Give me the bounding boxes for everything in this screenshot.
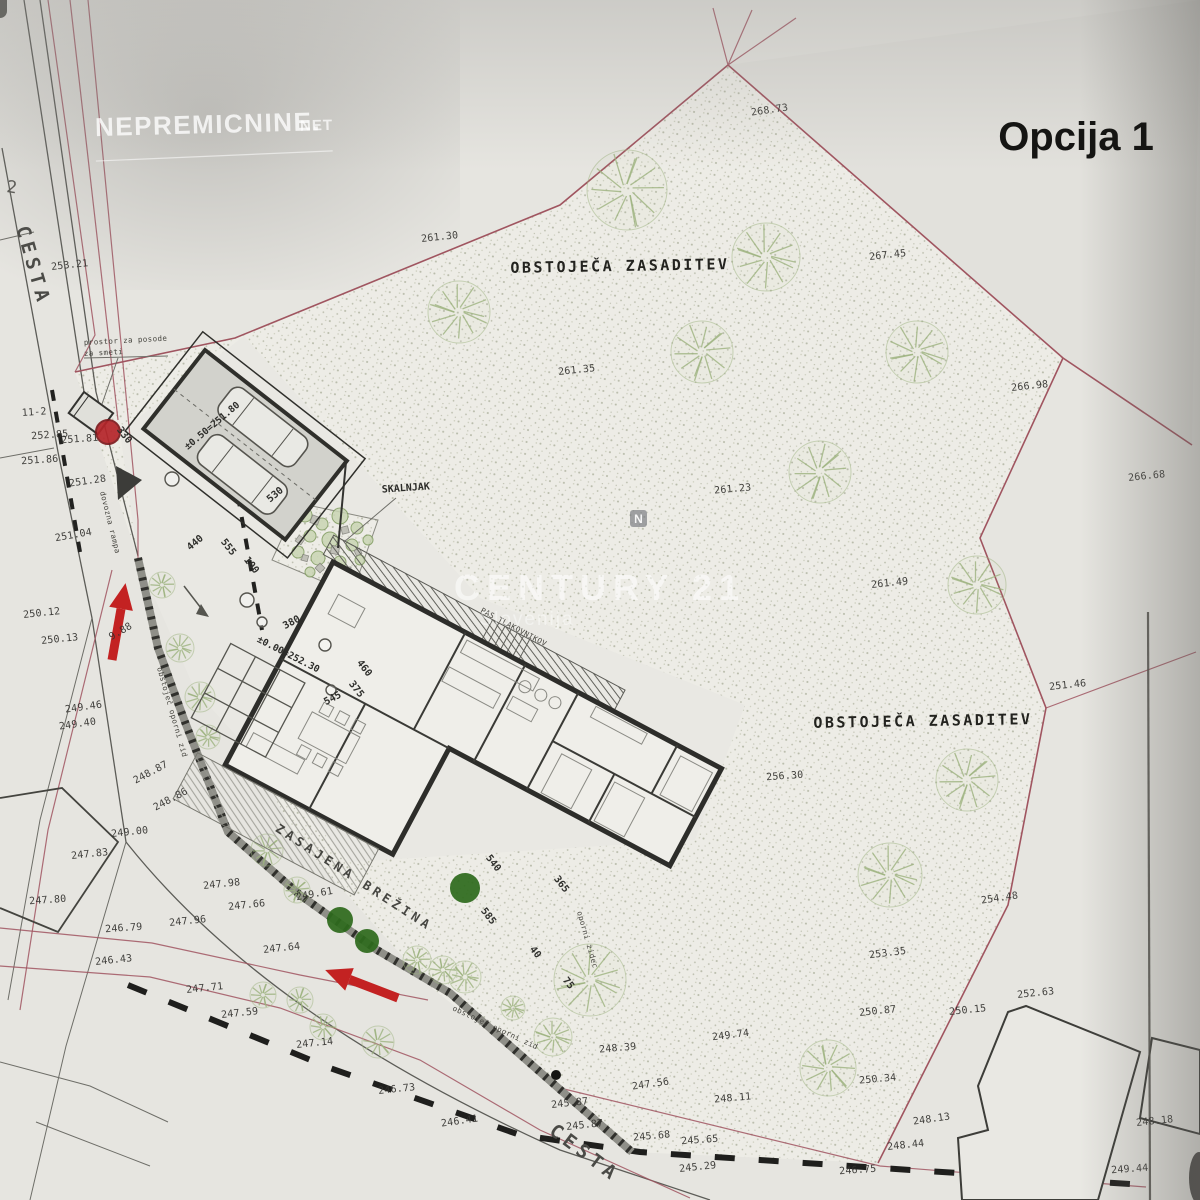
tree-symbol [250, 982, 276, 1008]
manhole-circle [240, 593, 254, 607]
tree-symbol [196, 725, 220, 749]
survey-dot [551, 1070, 561, 1080]
rock-garden-plant [311, 551, 325, 565]
tree-symbol [428, 281, 490, 343]
bush-symbol [355, 929, 379, 953]
tree-symbol [671, 321, 733, 383]
option-title: Opcija 1 [998, 115, 1154, 159]
portal-logo-suffix: NET [300, 117, 333, 135]
agency-name: CENTURY 21 [454, 567, 746, 608]
tree-symbol [362, 1026, 394, 1058]
manhole-circle [257, 617, 267, 627]
rock-garden-stone [301, 554, 308, 561]
rock-garden-plant [363, 535, 373, 545]
site-plan-drawing: 268.73261.30267.45261.35266.98266.68261.… [0, 0, 1200, 1200]
bush-symbol [450, 873, 480, 903]
portal-logo-text: NEPREMICNINE. [95, 106, 322, 142]
rock-garden-plant [305, 567, 315, 577]
tree-symbol [732, 223, 800, 291]
tree-symbol [858, 843, 922, 907]
tree-symbol [287, 987, 313, 1013]
tree-symbol [501, 996, 525, 1020]
existing-vegetation-label-2: OBSTOJEČA ZASADITEV [813, 709, 1032, 732]
existing-vegetation-label-1: OBSTOJEČA ZASADITEV [510, 254, 729, 277]
tree-symbol [149, 572, 175, 598]
manhole-circle [319, 639, 331, 651]
parcel-number: 11-2 [21, 406, 47, 419]
agency-n-letter: N [634, 512, 643, 526]
tree-symbol [800, 1040, 856, 1096]
tree-symbol [449, 961, 481, 993]
site-plan-scan: 268.73261.30267.45261.35266.98266.68261.… [0, 0, 1200, 1200]
tree-symbol [185, 682, 215, 712]
tree-symbol [403, 946, 431, 974]
agency-subname: Slovenija [479, 609, 574, 630]
rock-garden-plant [304, 530, 316, 542]
tree-symbol [534, 1018, 572, 1056]
tree-symbol [789, 441, 851, 503]
manhole-circle [165, 472, 179, 486]
tree-symbol [886, 321, 948, 383]
rock-garden-stone [341, 526, 350, 535]
tree-symbol [936, 749, 998, 811]
tree-symbol [948, 556, 1006, 614]
bush-symbol [327, 907, 353, 933]
tree-symbol [166, 634, 194, 662]
